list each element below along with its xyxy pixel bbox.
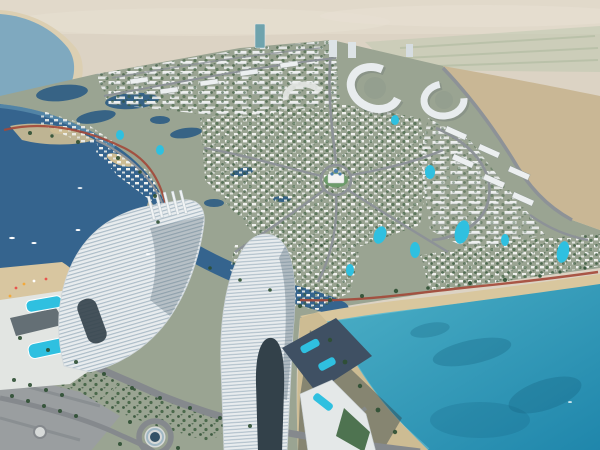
small-plaza <box>34 426 46 438</box>
aerial-render <box>0 0 600 450</box>
render-canvas <box>0 0 600 450</box>
glass-tower <box>255 24 265 48</box>
desert-haze <box>0 0 600 36</box>
center-tower-arch <box>256 338 284 450</box>
